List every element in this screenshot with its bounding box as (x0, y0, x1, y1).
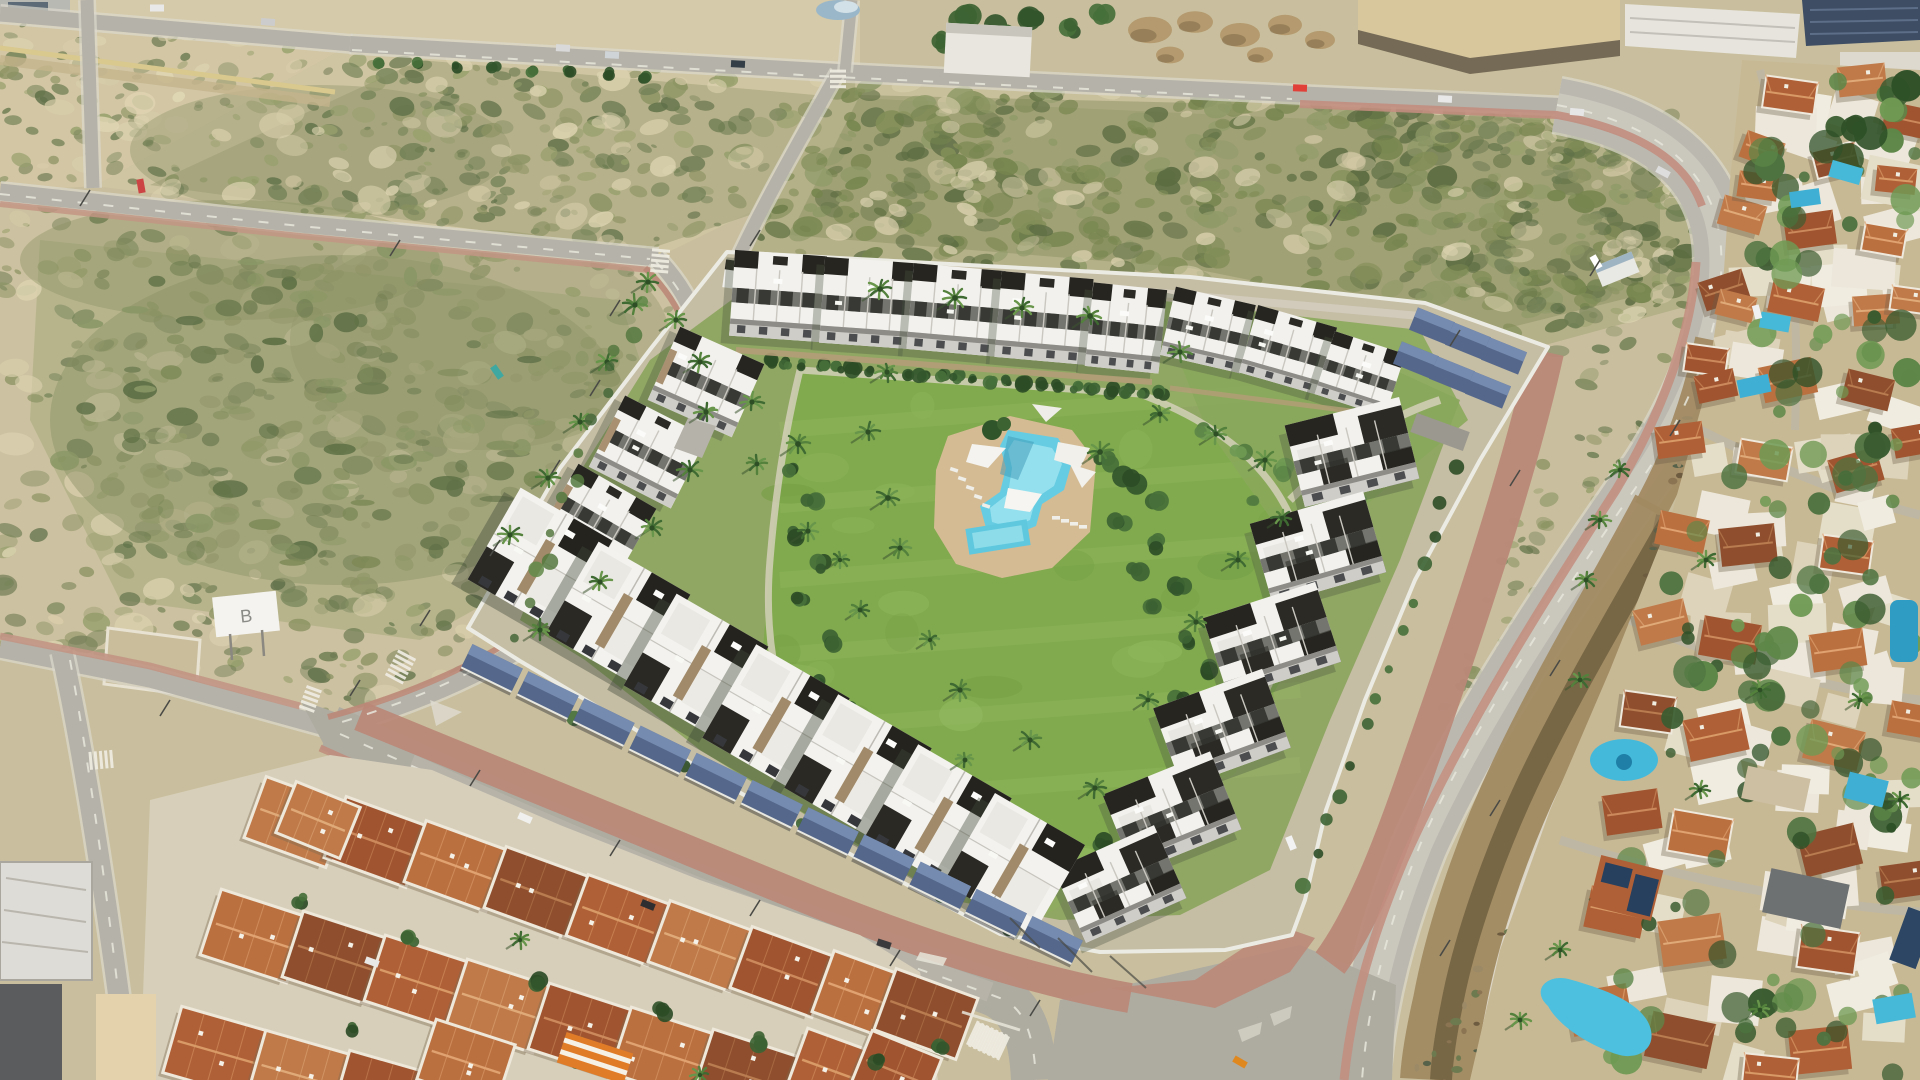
svg-text:B: B (239, 605, 253, 626)
